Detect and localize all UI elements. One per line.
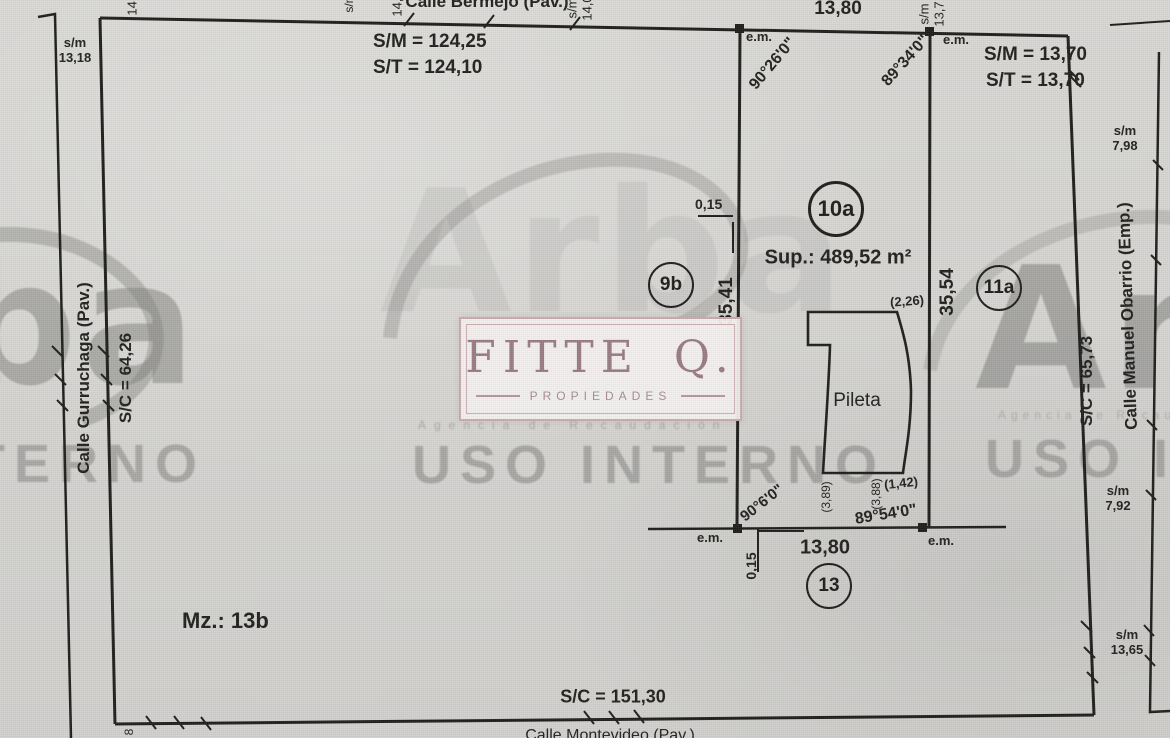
pool-dimension-bottom-right: (3,88) <box>869 478 883 509</box>
cutoff-dimension-fragment: 8 <box>122 729 136 736</box>
em-mark-sw: e.m. <box>697 530 723 545</box>
parcel-circle-11a: 11a <box>976 265 1022 311</box>
lot-rear-extension-line <box>648 527 1006 529</box>
corner-dot-se <box>918 523 927 532</box>
frontage-sm-lot: S/M = 13,70 <box>984 44 1087 66</box>
parcel-circle-13: 13 <box>806 563 852 609</box>
margin-note-e: s/m 7,92 <box>1095 484 1141 513</box>
side-dimension-right: 35,54 <box>937 268 959 316</box>
wordmark-text: FITTE <box>465 336 640 380</box>
margin-note-se: s/m 13,65 <box>1102 628 1152 657</box>
cutoff-dimension-fragment: s/m <box>342 0 356 13</box>
frontage-sc-bottom: S/C = 151,30 <box>560 687 666 708</box>
parcel-id: 11a <box>984 277 1015 299</box>
lot-right-boundary <box>929 32 930 528</box>
street-name-bottom: Calle Montevideo (Pav.) <box>525 727 695 738</box>
corner-dot-nw <box>735 24 744 33</box>
fitte-q-wordmark: FITTE Q. <box>465 336 735 380</box>
dimension-front-13-80: 13,80 <box>814 0 862 20</box>
cutoff-dimension-fragment: s/m 14,0 <box>565 0 594 21</box>
fitte-q-logo-frame: FITTE Q. PROPIEDADES <box>466 324 735 414</box>
parcel-id: 13 <box>818 575 839 597</box>
parcel-circle-9b: 9b <box>648 262 694 308</box>
frontage-sc-left: S/C = 64,26 <box>116 333 136 423</box>
em-mark-ne: e.m. <box>943 32 969 47</box>
street-left-outer-line <box>38 14 71 738</box>
offset-dimension-top: 0,15 <box>695 196 722 212</box>
street-name-left: Calle Gurruchaga (Pav.) <box>74 282 94 473</box>
wordmark-initial: Q. <box>674 336 736 380</box>
corner-dot-ne <box>925 27 934 36</box>
pool-dimension-top: (2,26) <box>890 292 925 309</box>
corner-monuments <box>733 24 934 533</box>
cutoff-dimension-fragment: s/m 13,7 <box>917 1 946 26</box>
tagline-dash-right <box>681 395 725 397</box>
frontage-sm-top: S/M = 124,25 <box>373 31 487 53</box>
offset-detail-bottom <box>758 528 804 572</box>
frontage-sc-right: S/C = 65,73 <box>1077 336 1097 426</box>
em-mark-se: e.m. <box>928 533 954 548</box>
margin-note-ne: s/m 7,98 <box>1102 124 1148 153</box>
pool-dimension-bottom-left: (3,89) <box>819 481 833 512</box>
offset-detail-top <box>698 216 733 253</box>
corner-dot-sw <box>733 524 742 533</box>
street-right-outer-line <box>1150 52 1170 712</box>
em-mark-nw: e.m. <box>746 29 772 44</box>
block-number: Mz.: 13b <box>182 608 269 634</box>
tagline-dash-left <box>476 395 520 397</box>
frontage-st-top: S/T = 124,10 <box>373 57 482 79</box>
scanned-survey-plan: Arba Agencia de Recaudación USO INTERNO … <box>0 0 1170 738</box>
cutoff-dimension-fragment: 14,0 <box>125 0 140 16</box>
margin-note-nw: s/m 13,18 <box>50 36 100 65</box>
street-top-stub-line <box>1110 21 1170 25</box>
cutoff-dimension-fragment: 14,0 <box>390 0 405 17</box>
frontage-st-lot: S/T = 13,70 <box>986 70 1085 92</box>
street-name-top: Calle Bermejo (Pav.) <box>405 0 568 12</box>
parcel-id: 10a <box>818 196 855 222</box>
parcel-circle-10a: 10a <box>808 181 864 237</box>
tagline-text: PROPIEDADES <box>530 389 672 403</box>
offset-dimension-bottom: 0,15 <box>743 552 759 579</box>
fitte-q-tagline: PROPIEDADES <box>476 389 726 403</box>
parcel-id: 9b <box>660 274 682 296</box>
block-left-edge <box>100 18 115 724</box>
dimension-rear-13-80: 13,80 <box>800 537 850 560</box>
fitte-q-logo-stamp: FITTE Q. PROPIEDADES <box>459 317 742 421</box>
block-bottom-edge <box>115 715 1094 724</box>
pool-label: Pileta <box>833 390 881 412</box>
lot-area: Sup.: 489,52 m² <box>765 247 912 270</box>
